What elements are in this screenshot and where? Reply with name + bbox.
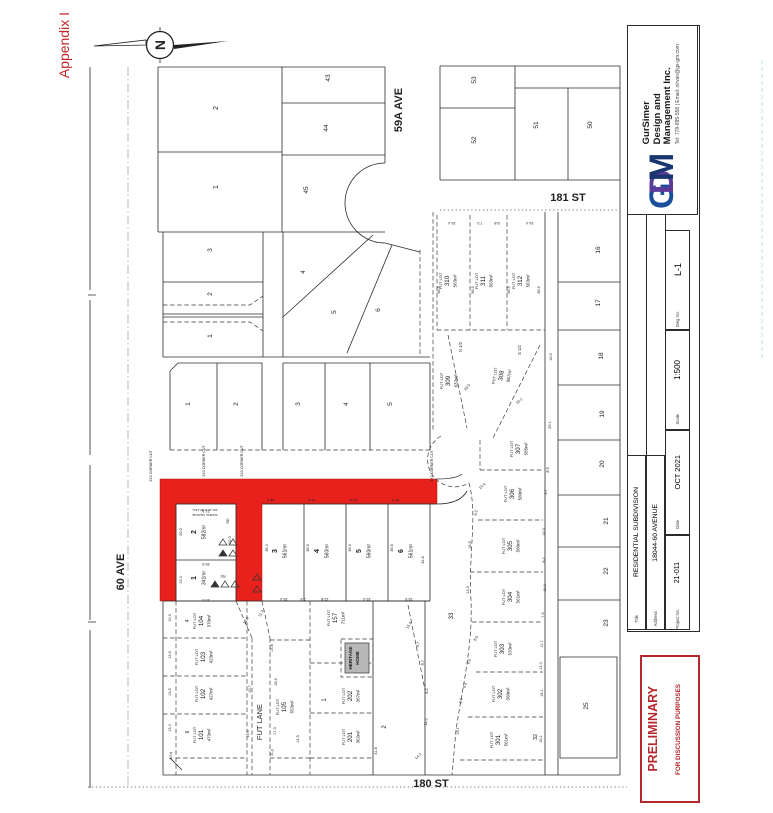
- dim-label: 16.1: [539, 735, 543, 742]
- future-lot-area-f201: 362m²: [356, 730, 361, 743]
- drawing-title-value: RESIDENTIAL SUBDIVISION: [633, 487, 640, 577]
- titleblock-scale-cell: 1:500 Scale: [665, 330, 690, 430]
- project-no-label: Project No.: [675, 609, 680, 630]
- dim-label: 8.8: [494, 221, 499, 225]
- future-lot-prefix-f311: FUT LOT: [474, 272, 479, 289]
- company-line3: Management Inc.: [663, 44, 673, 144]
- future-lot-area-f105: 553m²: [290, 700, 295, 713]
- future-lot-area-f310: 563m²: [453, 274, 458, 287]
- heritage-home: HERITAGE HOME: [345, 643, 369, 673]
- future-lot-area-f306: 560m²: [518, 487, 523, 500]
- lot-number-tl2: 2: [213, 106, 220, 110]
- dim-label: 15.4: [526, 221, 533, 225]
- lot-number-r2: 2: [233, 402, 240, 406]
- future-lot-prefix-f105: FUT LOT: [275, 698, 280, 715]
- future-lot-prefix-f103: FUT LOT: [194, 648, 199, 665]
- lot-number-ml3: 3: [207, 248, 214, 252]
- dim-label: 31.8: [374, 747, 378, 754]
- future-lot-number-f301: 301: [495, 734, 502, 745]
- lot-number-r1: 1: [185, 402, 192, 406]
- lot-number-r5: 5: [387, 402, 394, 406]
- future-lot-prefix-f104: FUT LOT: [192, 612, 197, 629]
- dim-label: 11.3: [423, 718, 428, 726]
- future-lot-number-f101: 101: [198, 729, 205, 740]
- titleblock-title-cell: RESIDENTIAL SUBDIVISION Title: [627, 455, 646, 630]
- proposed-lot-area-n1: 341m²: [202, 571, 208, 586]
- titleblock-date-cell: OCT 2021 Date: [665, 430, 690, 535]
- dim-label: 16.1: [540, 689, 544, 696]
- lot-number-tr53: 53: [471, 76, 478, 84]
- dim-label: 16.1: [515, 397, 523, 405]
- dim-label: 8.0: [473, 635, 479, 642]
- lot-number-tr50: 50: [587, 121, 594, 129]
- dim-label: 14.4: [246, 730, 250, 737]
- lot-number-r3: 3: [295, 402, 302, 406]
- dim-label: 10.3: [168, 614, 172, 621]
- future-lot-prefix-f304: FUT LOT: [501, 588, 506, 605]
- titleblock-address-cell: 18044-60 AVENUE Address: [646, 455, 665, 630]
- dim-label: 20.0: [179, 528, 183, 535]
- future-lot-area-f301: 561m²: [504, 733, 509, 746]
- tree-symbol: [219, 539, 227, 545]
- future-lot-number-f307: 307: [515, 443, 522, 454]
- future-lot-number-f310: 310: [444, 275, 451, 286]
- dim-label: 18.9: [274, 678, 278, 685]
- future-lot-area-f307: 585m²: [524, 442, 529, 455]
- road-mark: RD: [226, 518, 230, 523]
- dim-label: 8.5: [546, 467, 550, 473]
- heritage-label: HOME: [355, 651, 360, 665]
- future-lot-area-f312: 563m²: [526, 274, 531, 287]
- heritage-label: HERITAGE: [348, 647, 353, 670]
- dim-label: 11.0: [543, 584, 547, 591]
- dim-label: 25.5: [202, 562, 209, 566]
- dim-label: 11.7: [540, 640, 544, 647]
- lot-number-e19: 19: [599, 410, 606, 418]
- street-label-60-ave: 60 AVE: [115, 554, 127, 591]
- dim-label: 36.5: [537, 286, 541, 293]
- dim-label: 15.4: [448, 221, 455, 225]
- dim-label: 36.5: [306, 544, 310, 551]
- proposed-lot-number-n3: 3: [272, 549, 279, 553]
- lot-number-mr6: 6: [375, 308, 382, 312]
- dim-label: 21.5: [202, 509, 209, 513]
- drawing-title-label: Title: [634, 615, 639, 623]
- preliminary-stamp: PRELIMINARY FOR DISCUSSION PURPOSES: [640, 655, 700, 803]
- future-lot-prefix-f309: FUT LOT: [439, 372, 444, 389]
- future-lot-prefix-f157: FUT LOT: [326, 609, 331, 626]
- future-lot-area-f103: 423m²: [209, 650, 214, 663]
- logo-monogram: GDM: [645, 150, 679, 209]
- future-lot-prefix-f310: FUT LOT: [438, 272, 443, 289]
- future-lot-area-f305: 560m²: [516, 539, 521, 552]
- future-lot-area-f101: 473m²: [207, 728, 212, 741]
- tree-symbol: [211, 581, 219, 587]
- lot-number-b1: 1: [322, 698, 328, 702]
- lot-number-tr52: 52: [471, 136, 478, 144]
- proposed-lot-number-n1: 1: [191, 576, 198, 580]
- future-lot-prefix-f301: FUT LOT: [489, 731, 494, 748]
- dim-label: 13.4: [168, 724, 172, 731]
- future-lot-number-f103: 103: [200, 651, 207, 662]
- lot-number-ml1: 1: [207, 334, 214, 338]
- future-lot-number-f311: 311: [480, 276, 487, 286]
- future-lot-number-f309: 309: [445, 375, 452, 386]
- dim-label: 36.5: [348, 544, 352, 551]
- dim-label: 25.1: [548, 421, 552, 428]
- dim-label: 35.4: [265, 544, 269, 551]
- lot-number-e32: 32: [533, 734, 539, 740]
- future-lot-number-f306: 306: [509, 488, 516, 499]
- lot-number-r4: 4: [343, 402, 350, 406]
- dim-label: 13.5: [168, 688, 172, 695]
- dim-label: 8.5: [466, 658, 472, 664]
- s-half-label: S 1/2: [517, 344, 522, 354]
- dim-label: 36.5: [390, 544, 394, 551]
- appendix-label-wrap: Appendix I: [56, 12, 72, 124]
- lot-number-mr5: 5: [331, 310, 338, 314]
- dwg-no-label: Dwg No.: [675, 311, 680, 327]
- dim-label: 2.4: [300, 597, 305, 601]
- dim-label: 10.4: [478, 482, 486, 490]
- dim-label: 8.2: [542, 557, 546, 562]
- proposed-lot-area-n3: 561m²: [283, 544, 289, 559]
- dim-label: 15.4: [280, 597, 287, 601]
- dim-label: 7.3: [477, 221, 482, 225]
- dim-label: 11.3: [258, 609, 265, 617]
- dim-label: 10.3: [542, 528, 546, 535]
- lot-number-t44: 44: [323, 124, 330, 132]
- proposed-lot-area-n5: 560m²: [367, 544, 373, 559]
- proposed-lot-area-n2: 582m²: [202, 525, 208, 540]
- dim-label: 12.0: [243, 616, 250, 624]
- dim-label: 14.5: [296, 735, 300, 742]
- future-lot-area-f102: 427m²: [209, 687, 214, 700]
- road-mark: RD: [220, 574, 225, 578]
- future-lot-prefix-f306: FUT LOT: [503, 485, 508, 502]
- dim-label: 8.7: [415, 642, 420, 648]
- future-lot-number-f304: 304: [507, 591, 514, 602]
- future-lot-area-f202: 367m²: [356, 689, 361, 702]
- dim-label: 22.0: [228, 536, 232, 543]
- lot-number-t45: 45: [303, 186, 310, 194]
- street-label-fut-lane: FUT LANE: [255, 704, 264, 740]
- future-lot-number-f157: 157: [332, 612, 339, 623]
- lot-number-t43: 43: [325, 74, 332, 82]
- future-lot-area-f302: 560m²: [506, 687, 511, 700]
- future-lot-prefix-f201: FUT LOT: [341, 728, 346, 745]
- dwg-no-value: L-1: [673, 263, 683, 276]
- dim-label: 14.4: [539, 662, 543, 669]
- dim-label: 15.5: [405, 597, 412, 601]
- future-lot-area-f304: 561m²: [516, 590, 521, 603]
- future-lot-number-f308: 308: [497, 370, 506, 382]
- lot-number-tr51: 51: [533, 121, 540, 129]
- future-lot-number-f303: 303: [499, 643, 506, 654]
- dim-label: 14.2: [414, 752, 422, 760]
- dim-label: 12.8: [321, 597, 328, 601]
- company-line1: GurSimer: [642, 44, 652, 144]
- lot-number-e20: 20: [599, 460, 606, 468]
- future-lot-number-f302: 302: [497, 688, 504, 699]
- corner-cut-label: 3X3 CORNER CUT: [240, 445, 244, 477]
- dim-label: 13.1: [456, 727, 460, 734]
- proposed-lot-area-n4: 560m²: [325, 544, 331, 559]
- future-lot-prefix-f305: FUT LOT: [501, 537, 506, 554]
- future-lot-number-f305: 305: [507, 540, 514, 551]
- proposed-lot-number-n6: 6: [398, 549, 405, 553]
- dim-label: 13.5: [168, 651, 172, 658]
- appendix-label: Appendix I: [56, 12, 72, 78]
- future-lot-prefix-f102: FUT LOT: [194, 685, 199, 702]
- north-letter: N: [153, 40, 169, 50]
- title-block-divider: [646, 215, 647, 455]
- future-lot-prefix-f101: FUT LOT: [192, 726, 197, 743]
- future-lot-area-f311: 563m²: [489, 274, 494, 287]
- future-lot-prefix-f312: FUT LOT: [511, 272, 516, 289]
- dim-label: 7.4: [541, 612, 545, 617]
- future-lot-number-f105: 105: [281, 701, 288, 712]
- lot-number-e33: 33: [449, 612, 455, 619]
- future-lot-area-f104: 370m²: [207, 614, 212, 627]
- street-label-59a-ave: 59A AVE: [393, 88, 405, 132]
- dim-label: 15.4: [308, 498, 315, 502]
- lot-number-b2: 2: [382, 725, 388, 729]
- dim-label: 15.4: [392, 498, 399, 502]
- future-lot-prefix-f302: FUT LOT: [491, 685, 496, 702]
- corner-cut-label: 3X3 CORNER CUT: [149, 450, 153, 482]
- logo-letter-d: D: [643, 181, 681, 194]
- dim-label: 10.4: [169, 752, 174, 760]
- street-label-181-st: 181 ST: [550, 192, 586, 204]
- lot-number-e18: 18: [598, 352, 605, 360]
- dim-label: 13.8: [270, 644, 274, 651]
- dim-label: 9.3: [462, 683, 467, 689]
- stamp-line2: FOR DISCUSSION PURPOSES: [675, 684, 682, 775]
- tree-symbol: [219, 550, 227, 556]
- dim-label: 10.7: [248, 685, 252, 692]
- future-lot-prefix-f202: FUT LOT: [341, 687, 346, 704]
- dim-label: 25.5: [202, 598, 209, 602]
- lot-number-e17: 17: [595, 299, 602, 307]
- future-lot-number-f202: 202: [347, 690, 354, 701]
- date-label: Date: [675, 520, 680, 529]
- future-lot-number-f104: 104: [198, 615, 205, 626]
- lot-number-e16: 16: [595, 246, 602, 254]
- dim-label: 5.6: [459, 698, 464, 704]
- address-value: 18044-60 AVENUE: [652, 504, 659, 562]
- dim-label: 15.4: [350, 498, 357, 502]
- future-lot-area-f157: 711m²: [341, 611, 346, 624]
- lot-number-tl1: 1: [213, 185, 220, 189]
- lot-number-b4: 4: [185, 619, 191, 622]
- scale-label: Scale: [675, 414, 680, 424]
- proposed-lot-number-n2: 2: [191, 530, 198, 534]
- dim-label: 6.2: [474, 510, 479, 516]
- dim-label: 14.4: [267, 498, 274, 502]
- plan-lines-solid: [88, 66, 620, 788]
- future-lot-area-f303: 533m²: [508, 642, 513, 655]
- corner-cut-label: 3X3 CORNER CUT: [430, 450, 434, 482]
- tree-symbol: [221, 581, 229, 587]
- stamp-line1: PRELIMINARY: [646, 686, 660, 772]
- dim-label: 13.3: [466, 586, 470, 593]
- future-lot-number-f201: 201: [347, 731, 354, 742]
- dim-label: 16.0: [549, 353, 553, 360]
- lot-number-mr4: 4: [300, 270, 307, 274]
- company-logo: GDM GurSimer Design and Management Inc. …: [628, 27, 696, 213]
- dim-label: 4.7: [544, 489, 548, 495]
- proposed-lot-area-n6: 561m²: [409, 544, 415, 559]
- lot-number-b6: 6: [185, 730, 191, 733]
- corner-cut-label: 3X3 CORNER CUT: [202, 445, 206, 477]
- future-lot-prefix-f307: FUT LOT: [509, 440, 514, 457]
- project-no-value: 21-011: [674, 562, 681, 583]
- logo-letter-g: G: [643, 194, 681, 209]
- lot-number-ml2: 2: [207, 292, 214, 296]
- titleblock-dwg-cell: L-1 Dwg No.: [665, 230, 690, 330]
- lot-number-e21: 21: [603, 517, 610, 525]
- dim-label: 11.0: [269, 749, 275, 757]
- dim-label: 32.8: [421, 556, 425, 563]
- dim-label: 18.5: [468, 541, 472, 548]
- dim-label: 17.3: [273, 727, 277, 734]
- future-lot-number-f102: 102: [200, 688, 207, 699]
- future-lot-area-f309: 637m²: [454, 374, 459, 387]
- street-label-180-st: 180 ST: [413, 778, 449, 790]
- proposed-lot-number-n4: 4: [314, 549, 321, 553]
- dim-label: 8.2: [425, 688, 429, 693]
- titleblock-project-cell: 21-011 Project No.: [665, 535, 690, 630]
- lot-number-e22: 22: [603, 567, 610, 575]
- dim-label: 43.5: [463, 383, 471, 391]
- lot-number-e23: 23: [603, 619, 610, 627]
- lot-number-e25: 25: [583, 702, 590, 710]
- generated-labels: 21.520.022.013.425.525.514.415.415.415.4…: [149, 74, 610, 760]
- date-value: OCT 2021: [673, 455, 682, 489]
- proposed-lot-number-n5: 5: [356, 549, 363, 553]
- address-label: Address: [653, 611, 658, 626]
- company-contact: Tel: 778-895-558 | Email: nirvair@gs-gm.…: [676, 44, 682, 144]
- future-lot-prefix-f303: FUT LOT: [493, 640, 498, 657]
- future-lot-area-f308: 867m²: [505, 369, 512, 383]
- future-lot-number-f312: 312: [517, 275, 524, 286]
- n-half-label: N 1/2: [458, 341, 463, 352]
- company-name: GurSimer Design and Management Inc. Tel:…: [642, 44, 682, 144]
- north-arrow: N: [94, 27, 228, 63]
- dim-label: 15.4: [363, 597, 370, 601]
- scale-value: 1:500: [673, 360, 682, 380]
- logo-letter-m: M: [643, 164, 681, 181]
- dim-label: 13.4: [179, 576, 183, 583]
